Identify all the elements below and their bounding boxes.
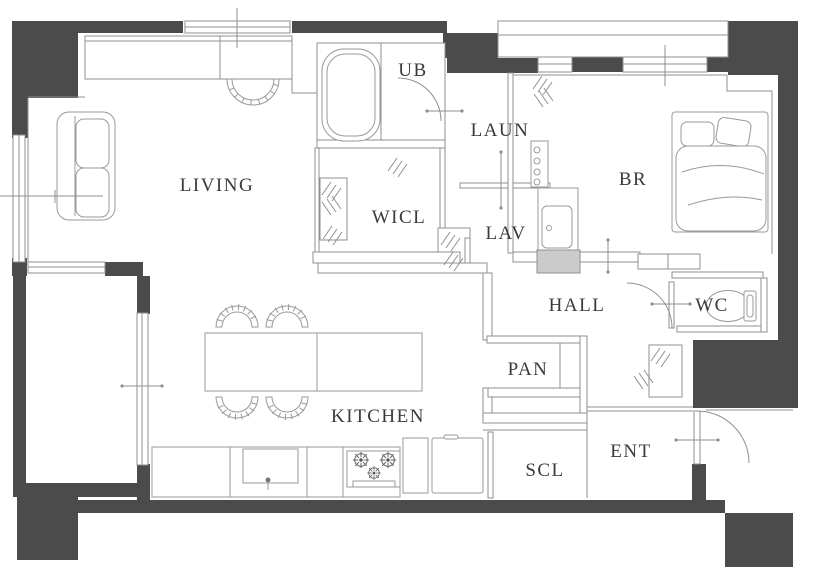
dining-chair-icon <box>266 397 308 420</box>
half-round-console-icon <box>227 79 279 105</box>
dining-chair-icon <box>216 397 258 420</box>
refrigerator-icon <box>432 435 483 493</box>
pantry-shelf <box>488 388 580 397</box>
pantry-walls <box>483 273 587 430</box>
window-icon <box>13 135 25 262</box>
washbasin-icon <box>538 188 578 252</box>
floor-plan-drawing <box>0 0 820 577</box>
bed-icon <box>672 112 768 232</box>
br-cabinet <box>638 254 700 269</box>
appliance-box <box>537 250 580 273</box>
floor-plan: LIVING UB LAUN WICL LAV BR HALL WC PAN K… <box>0 0 820 577</box>
dining-table-icon <box>205 333 317 391</box>
ent-closet <box>649 345 682 397</box>
washer-unit-icon <box>531 141 548 187</box>
door-swing-icon entrance-door <box>694 411 749 464</box>
service-balcony <box>498 21 728 57</box>
dining-chair-icon <box>216 304 258 327</box>
bathtub-icon <box>322 49 380 141</box>
kitchen-counter <box>152 447 400 497</box>
pillow-icon <box>681 122 714 146</box>
door-swing-icon <box>627 282 674 328</box>
dining-chair-icon <box>266 304 308 327</box>
tall-cabinet <box>403 438 428 493</box>
window-icon <box>137 313 148 465</box>
pillow-icon <box>715 117 752 148</box>
window-icon <box>538 57 572 72</box>
toilet-icon <box>706 291 756 322</box>
kitchen-island <box>317 333 422 391</box>
window-icon <box>28 262 105 273</box>
sofa-icon <box>57 112 115 220</box>
blanket <box>676 146 766 231</box>
living-closet-band <box>85 36 292 79</box>
